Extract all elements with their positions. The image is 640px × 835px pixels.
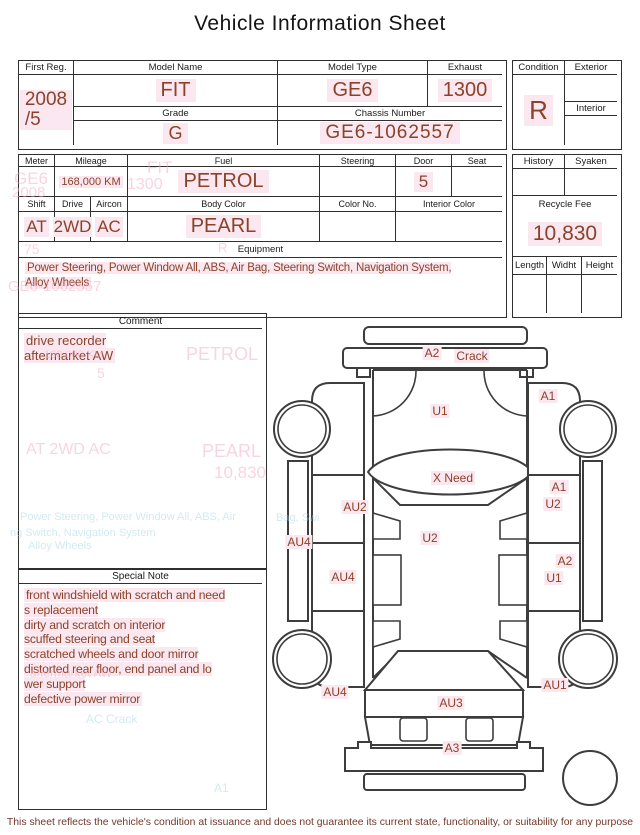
damage-label: AU2 [341,500,368,514]
spec-table: Meter Mileage Fuel Steering Door Seat 16… [18,154,507,318]
rear-gate-section [345,651,543,790]
shift-value: AT [19,212,55,242]
body-color-text: PEARL [186,215,262,238]
history-value [513,169,565,196]
roof-section [373,478,527,678]
interior-label: Interior [565,102,617,116]
first-reg-label: First Reg. [19,61,74,75]
model-type-label: Model Type [278,61,428,75]
damage-label: A2 [556,554,575,568]
recycle-fee-label: Recycle Fee [513,196,617,212]
model-name-text: FIT [156,79,196,102]
damage-label: AU4 [321,685,348,699]
width-value [547,275,582,313]
shift-text: AT [24,217,48,237]
exterior-value [565,75,617,102]
condition-box: Condition R Exterior Interior [512,60,622,150]
syaken-value [565,169,617,196]
height-value [582,275,617,313]
drive-text: 2WD [53,217,93,237]
chassis-number-value: GE6-1062557 [278,121,502,145]
mileage-text: 168,000 KM [59,176,122,188]
damage-label: AU1 [541,678,568,692]
drive-value: 2WD [55,212,91,242]
color-no-label: Color No. [320,197,396,212]
damage-label: AU4 [285,535,312,549]
condition-label: Condition [513,61,565,75]
page-title: Vehicle Information Sheet [0,12,640,36]
vehicle-information-sheet-page: GE62008FIT130075RGE6-1062557168,000 KMPE… [0,0,640,835]
meter-label: Meter [19,155,55,167]
chassis-number-text: GE6-1062557 [320,122,459,144]
interior-value [565,116,617,145]
damage-label: U2 [543,497,562,511]
first-reg-text: 2008 /5 [20,90,72,130]
special-note-text-block: front windshield with scratch and need s… [19,584,262,710]
body-color-value: PEARL [128,212,320,242]
condition-text: R [524,95,553,126]
model-type-text: GE6 [327,79,377,102]
damage-label: AU3 [437,696,464,710]
damage-label: Crack [454,349,489,363]
length-label: Length [513,257,547,275]
damage-label: U2 [420,531,439,545]
model-name-label: Model Name [74,61,278,75]
exterior-label: Exterior [565,61,617,75]
interior-color-value [396,212,502,242]
damage-label: A2 [423,346,442,360]
damage-label: A1 [539,389,558,403]
aircon-value: AC [91,212,128,242]
color-no-value [320,212,396,242]
damage-label: A3 [443,741,462,755]
interior-color-label: Interior Color [396,197,502,212]
exhaust-text: 1300 [438,79,493,102]
condition-value: R [513,75,565,145]
comment-header: Comment [19,314,262,329]
history-fee-panel: History Syaken Recycle Fee 10,830 Length… [512,154,622,318]
model-name-value: FIT [74,75,278,107]
model-type-value: GE6 [278,75,428,107]
special-note-box: Special Note front windshield with scrat… [18,568,267,810]
door-value: 5 [396,167,452,197]
comment-text-block: drive recorder aftermarket AW [19,329,262,367]
mileage-label: Mileage [55,155,128,167]
grade-label: Grade [74,107,278,121]
comment-box: Comment drive recorder aftermarket AW [18,313,267,570]
disclaimer-text: This sheet reflects the vehicle's condit… [0,817,640,828]
exhaust-label: Exhaust [428,61,502,75]
damage-label: U1 [430,404,449,418]
drive-label: Drive [55,197,91,212]
steering-value [320,167,396,197]
exhaust-value: 1300 [428,75,502,107]
comment-text: drive recorder aftermarket AW [24,333,115,363]
spare-wheel [563,751,617,805]
door-label: Door [396,155,452,167]
syaken-label: Syaken [565,155,617,169]
aircon-text: AC [95,217,123,237]
special-note-header: Special Note [19,569,262,584]
damage-label: A1 [550,480,569,494]
chassis-number-label: Chassis Number [278,107,502,121]
equipment-value: Power Steering, Power Window All, ABS, A… [19,258,502,313]
equipment-text: Power Steering, Power Window All, ABS, A… [25,262,451,289]
steering-label: Steering [320,155,396,167]
equipment-label: Equipment [19,242,502,258]
first-reg-value: 2008 /5 [19,75,74,145]
recycle-fee-text: 10,830 [528,222,602,246]
shift-label: Shift [19,197,55,212]
aircon-label: Aircon [91,197,128,212]
height-label: Height [582,257,617,275]
width-label: Widht [547,257,582,275]
body-color-label: Body Color [128,197,320,212]
fuel-label: Fuel [128,155,320,167]
seat-label: Seat [452,155,502,167]
vehicle-damage-diagram: A2CrackA1U1X NeedA1U2AU2U2AU4A2AU4U1AU1A… [270,315,635,810]
seat-value [452,167,502,197]
meter-value [19,167,55,197]
recycle-fee-value: 10,830 [513,212,617,257]
grade-value: G [74,121,278,145]
damage-label: AU4 [329,570,356,584]
grade-text: G [163,123,187,144]
special-note-text: front windshield with scratch and need s… [24,588,225,706]
car-outline-graphic [270,315,635,810]
damage-label: X Need [431,471,475,485]
fuel-text: PETROL [178,170,268,193]
fuel-value: PETROL [128,167,320,197]
history-label: History [513,155,565,169]
door-text: 5 [414,172,433,192]
damage-label: U1 [544,571,563,585]
length-value [513,275,547,313]
vehicle-info-table: First Reg. 2008 /5 Model Name FIT Model … [18,60,507,150]
mileage-value: 168,000 KM [55,167,128,197]
